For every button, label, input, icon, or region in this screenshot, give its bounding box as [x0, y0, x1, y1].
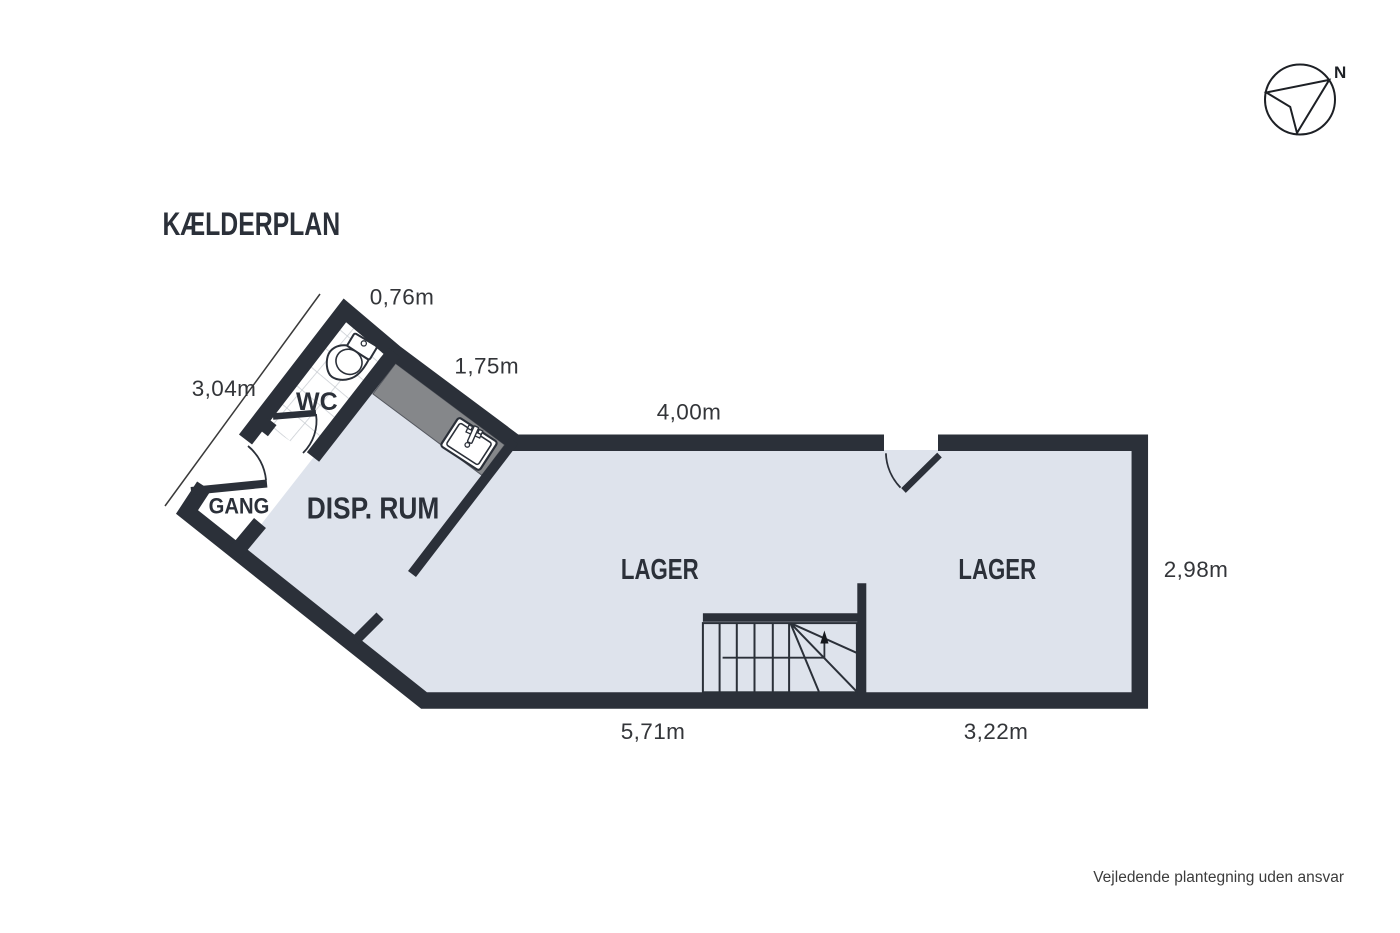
svg-text:Vejledende plantegning uden an: Vejledende plantegning uden ansvar	[1093, 869, 1344, 886]
svg-text:KÆLDERPLAN: KÆLDERPLAN	[162, 207, 340, 243]
svg-text:4,00m: 4,00m	[657, 400, 722, 425]
svg-text:3,04m: 3,04m	[192, 376, 257, 401]
svg-text:N: N	[1334, 63, 1346, 82]
svg-text:2,98m: 2,98m	[1164, 557, 1229, 582]
svg-text:WC: WC	[296, 388, 338, 416]
svg-text:DISP. RUM: DISP. RUM	[307, 492, 440, 526]
svg-text:5,71m: 5,71m	[621, 719, 686, 744]
svg-text:0,76m: 0,76m	[370, 284, 435, 309]
svg-text:LAGER: LAGER	[958, 554, 1036, 585]
svg-text:3,22m: 3,22m	[964, 719, 1029, 744]
svg-text:LAGER: LAGER	[621, 554, 699, 585]
svg-text:1,75m: 1,75m	[454, 353, 519, 378]
svg-text:GANG: GANG	[209, 495, 270, 519]
